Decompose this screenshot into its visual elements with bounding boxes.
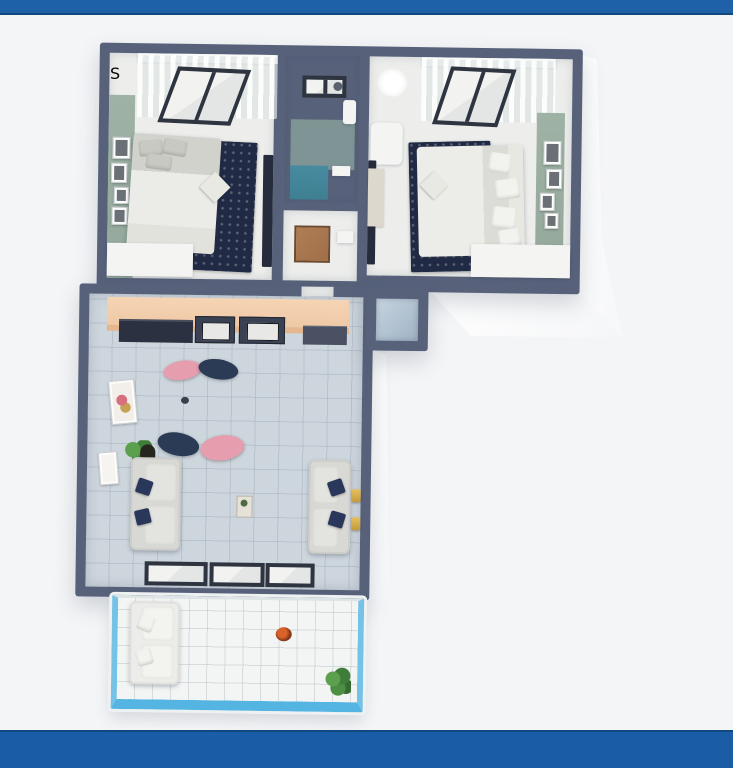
sofa [308,460,351,555]
wall-art [108,379,138,425]
living-window [265,563,314,588]
placemat [151,376,167,389]
sink-basin [247,323,279,341]
frame-art [111,382,134,422]
cooktop-hood [119,319,193,343]
placemat [151,389,167,402]
table-decor [181,397,189,404]
entry-hall [283,210,358,281]
bathroom [284,55,360,203]
placemat [151,402,167,415]
closet-floor [376,298,419,341]
wardrobe [262,155,274,267]
wall-sconce [352,489,361,502]
frame-art [547,216,555,226]
coffee-table [218,483,276,526]
balcony-sofa [129,601,180,685]
dining-table [151,376,224,426]
bedside-lamp [497,130,517,150]
sofa [130,457,181,551]
storage-closet [366,288,429,351]
toilet [333,176,349,197]
brand-logo: S [50,52,200,164]
frame-art [546,144,558,162]
living-room [85,293,363,590]
bathroom-sink [343,100,356,124]
balcony [111,595,365,713]
wall-sconce [351,517,360,530]
picture-frame [111,207,127,225]
bottom-banner [0,730,733,768]
bed-pillow [491,206,517,231]
frame-art [114,166,124,180]
tray-decor [241,500,248,507]
end-cabinet [303,325,347,345]
entry-door [294,225,331,262]
shower-head [333,82,342,91]
placemat [151,415,167,428]
frame-art [549,172,559,186]
table-centerpiece [276,627,292,641]
frame-art [117,190,126,201]
logo-stripe [59,124,147,138]
picture-frame [111,163,127,183]
window-mullion [324,80,328,94]
logo-letter: S [110,64,120,83]
frame-art [543,196,552,208]
picture-frame [543,141,561,165]
living-window [209,562,264,587]
kitchen-sink [195,316,235,344]
picture-frame [544,213,558,229]
listing-image: S [0,0,733,768]
hall-opening [301,286,333,296]
ceiling-light [377,68,407,96]
bed-pillow [494,178,520,201]
console-table [367,168,384,226]
living-wing [75,283,373,600]
bed-pillow [488,152,513,175]
kitchen-sink [239,317,285,345]
dining-chair-navy [156,429,202,459]
right-bedroom [367,56,573,278]
frame-art [114,210,124,222]
frame-art [101,454,116,482]
picture-frame [114,187,129,204]
sink-basin [202,322,230,340]
balcony-plant [325,667,351,697]
picture-frame [540,193,555,211]
window-mullion [465,72,486,122]
picture-frame [546,169,562,189]
logo-sphere-icon [58,60,150,152]
wall-shelf [337,231,353,243]
chaise-chair [370,122,403,164]
living-window [144,561,207,586]
leaning-frame [98,451,119,485]
toilet-tank [332,166,350,176]
bed [417,145,525,257]
shower-glass [290,119,355,170]
low-dresser [471,244,570,278]
dresser [107,243,193,277]
